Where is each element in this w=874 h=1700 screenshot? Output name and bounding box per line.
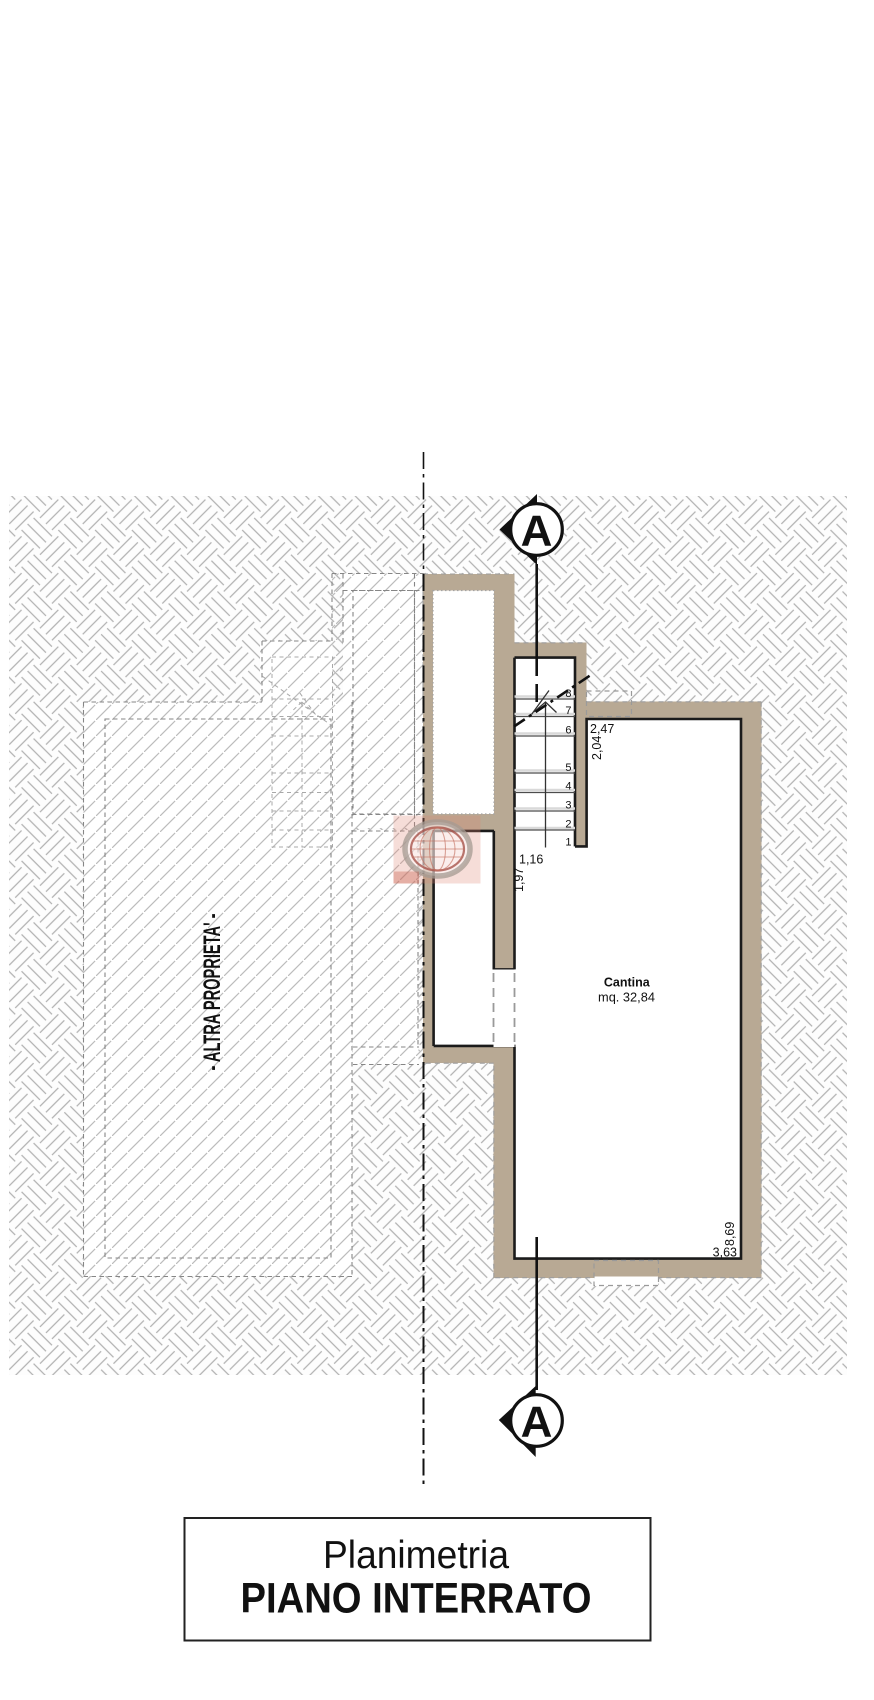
svg-text:Cantina: Cantina xyxy=(604,976,651,990)
svg-text:4: 4 xyxy=(565,781,571,793)
svg-text:6: 6 xyxy=(565,725,571,737)
svg-text:2: 2 xyxy=(565,819,571,831)
svg-text:3,63: 3,63 xyxy=(713,1246,737,1260)
svg-text:2,47: 2,47 xyxy=(590,722,614,736)
svg-text:A: A xyxy=(521,507,553,556)
svg-text:1: 1 xyxy=(565,837,571,849)
svg-text:A: A xyxy=(521,1398,553,1447)
svg-text:mq. 32,84: mq. 32,84 xyxy=(598,990,655,1005)
svg-text:7: 7 xyxy=(565,705,571,717)
svg-text:2,04: 2,04 xyxy=(590,736,604,760)
svg-text:5: 5 xyxy=(565,762,571,774)
svg-text:Planimetria: Planimetria xyxy=(323,1534,510,1577)
svg-text:- ALTRA PROPRIETA' -: - ALTRA PROPRIETA' - xyxy=(199,913,226,1070)
svg-text:PIANO INTERRATO: PIANO INTERRATO xyxy=(241,1576,592,1623)
svg-text:1,97: 1,97 xyxy=(512,868,526,892)
svg-text:1,16: 1,16 xyxy=(519,853,543,867)
svg-text:3: 3 xyxy=(565,800,571,812)
svg-text:8,69: 8,69 xyxy=(723,1222,737,1246)
svg-text:8: 8 xyxy=(565,688,571,700)
